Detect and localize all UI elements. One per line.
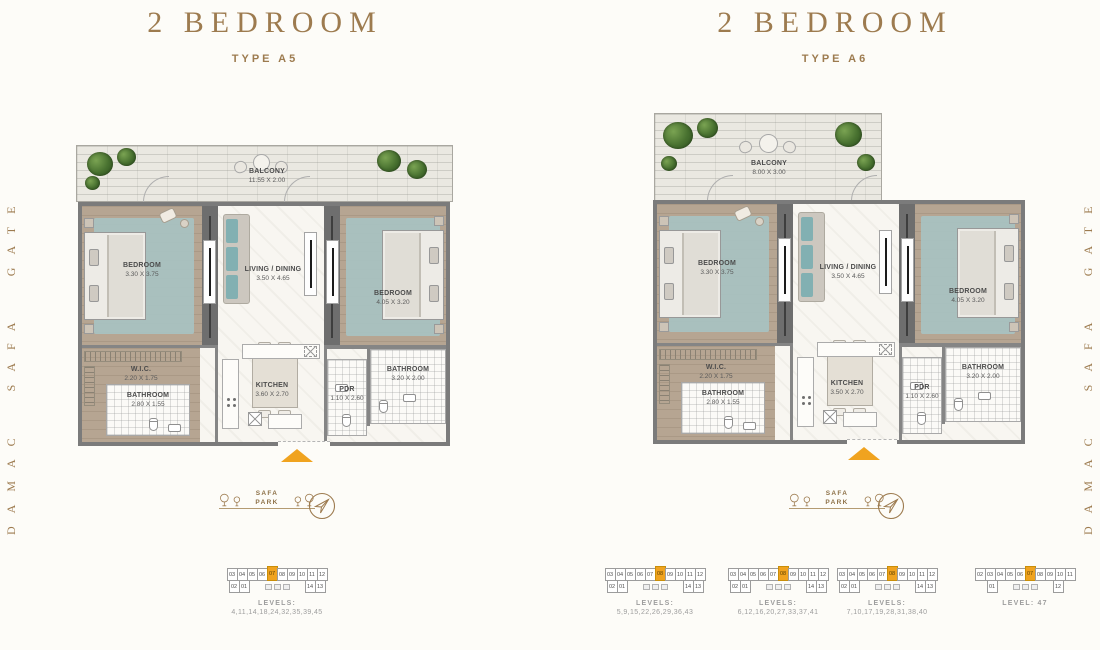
tv-panel	[304, 232, 317, 296]
core-box	[1022, 584, 1029, 590]
pillow	[89, 285, 99, 302]
levels-caption: LEVELS:	[718, 600, 838, 607]
room-dimension: 11.55 X 2.00	[207, 177, 327, 184]
safa-park-indicator: SAFA PARK	[219, 493, 315, 509]
room-dimension: 3.50 X 2.70	[797, 389, 897, 396]
diagram-core	[751, 580, 807, 593]
tree-icon	[219, 493, 230, 507]
toilet	[724, 416, 733, 429]
diagram-core	[250, 580, 306, 593]
room-name: KITCHEN	[797, 380, 897, 388]
level-key-diagram: 0304050607080910111202011413 LEVELS: 6,1…	[718, 568, 838, 616]
plant-icon	[857, 154, 875, 171]
diagram-bottom-row: 02011413	[827, 580, 947, 593]
nightstand	[84, 218, 94, 228]
pillow	[429, 247, 439, 264]
unit-cell: 01	[740, 580, 751, 593]
entry-arrow	[281, 449, 313, 462]
room-label-wic: W.I.C. 2.20 X 1.75	[657, 364, 775, 380]
level-key-diagram: 0304050607080910111202011413 LEVELS: 4,1…	[217, 568, 337, 616]
room-dimension: 4.05 X 3.20	[340, 299, 446, 306]
powder-room: PDR 1.10 X 2.60	[327, 359, 367, 436]
diagram-core	[860, 580, 916, 593]
tree-icon	[803, 496, 811, 507]
room-dimension: 2.20 X 1.75	[657, 373, 775, 380]
room-dimension: 1.10 X 2.60	[903, 393, 941, 400]
nightstand	[659, 322, 669, 332]
room-label-bathroom-2: BATHROOM 3.20 X 2.00	[371, 366, 445, 382]
core-box	[893, 584, 900, 590]
vanity-seat	[180, 219, 189, 228]
basin	[168, 424, 181, 432]
nightstand	[1009, 214, 1019, 224]
plan-subtitle-a6: TYPE A6	[635, 53, 1035, 65]
kitchen-hatch	[879, 344, 892, 355]
room-dimension: 1.10 X 2.60	[328, 395, 366, 402]
room-label-bathroom-1: BATHROOM 2.80 X 1.55	[682, 390, 764, 406]
basin	[743, 422, 756, 430]
core-box	[884, 584, 891, 590]
room-name: BEDROOM	[340, 290, 446, 298]
bathroom-1: BATHROOM 2.80 X 1.55	[681, 382, 765, 434]
core-box	[643, 584, 650, 590]
room-name: BALCONY	[709, 160, 829, 168]
closet-rail	[84, 351, 182, 362]
room-name: BATHROOM	[371, 366, 445, 374]
level-key-diagram: 0304050607080910111202011413 LEVELS: 7,1…	[827, 568, 947, 616]
room-label-bathroom-1: BATHROOM 2.80 X 1.55	[107, 392, 189, 408]
bathroom-2: BATHROOM 3.20 X 2.00	[945, 347, 1021, 422]
tree-icon	[789, 493, 800, 507]
stove-burner	[802, 396, 805, 399]
unit-cell: 12	[1053, 580, 1064, 593]
bed	[382, 230, 444, 320]
unit-cell: 11	[1065, 568, 1076, 581]
room-dimension: 2.20 X 1.75	[82, 375, 200, 382]
plant-icon	[663, 122, 693, 149]
levels-values: 5,9,15,22,26,29,36,43	[595, 609, 715, 616]
room-dimension: 3.20 X 2.00	[946, 373, 1020, 380]
basin	[978, 392, 991, 400]
entry-opening	[847, 439, 897, 445]
park-row: SAFA PARK	[219, 493, 315, 507]
room-dimension: 3.20 X 2.00	[371, 375, 445, 382]
room-name: BATHROOM	[107, 392, 189, 400]
room-label-balcony: BALCONY 11.55 X 2.00	[207, 168, 327, 184]
kitchen-sink	[823, 410, 837, 424]
stove-burner	[808, 402, 811, 405]
core-box	[274, 584, 281, 590]
sofa	[223, 214, 250, 304]
room-name: BATHROOM	[682, 390, 764, 398]
room-name: W.I.C.	[82, 366, 200, 374]
level-key-diagram: 0304050607080910111202011413 LEVELS: 5,9…	[595, 568, 715, 616]
powder-room: PDR 1.10 X 2.60	[902, 357, 942, 434]
balcony-chair	[737, 139, 753, 155]
stove-burner	[802, 402, 805, 405]
room-name: BATHROOM	[946, 364, 1020, 372]
core-box	[661, 584, 668, 590]
room-dimension: 4.05 X 3.20	[915, 297, 1021, 304]
room-name: PDR	[903, 384, 941, 392]
room-label-living-dining: LIVING / DINING 3.50 X 4.65	[793, 264, 903, 280]
tv-panel	[778, 238, 791, 302]
floorplan-body: W.I.C. 2.20 X 1.75 BATHROOM 2.80 X 1.55 …	[653, 200, 1025, 444]
diagram-bottom-row: 02011413	[595, 580, 715, 593]
room-label-balcony: BALCONY 8.00 X 3.00	[709, 160, 829, 176]
room-dimension: 2.80 X 1.55	[107, 401, 189, 408]
diagram-core	[628, 580, 684, 593]
diagram-bottom-row: 02011413	[217, 580, 337, 593]
balcony-chair	[781, 139, 797, 155]
levels-caption: LEVEL: 47	[965, 600, 1085, 607]
room-label-bathroom-2: BATHROOM 3.20 X 2.00	[946, 364, 1020, 380]
unit-cell: 01	[849, 580, 860, 593]
core-box	[283, 584, 290, 590]
plan-subtitle-a5: TYPE A5	[65, 53, 465, 65]
bed	[957, 228, 1019, 318]
core-box	[784, 584, 791, 590]
tv-panel	[879, 230, 892, 294]
toilet	[954, 398, 963, 411]
balcony-area: BALCONY 8.00 X 3.00	[654, 113, 882, 201]
kitchen-hatch	[304, 346, 317, 357]
room-dimension: 3.30 X 3.75	[657, 269, 777, 276]
core-box	[766, 584, 773, 590]
kitchen-counter	[843, 412, 877, 427]
nightstand	[84, 324, 94, 334]
sofa-cushion	[801, 217, 813, 241]
tree-icon	[294, 496, 302, 507]
sofa	[798, 212, 825, 302]
room-label-bedroom-2: BEDROOM 4.05 X 3.20	[340, 290, 446, 306]
door-arc	[143, 176, 169, 202]
nightstand	[434, 324, 444, 334]
room-label-bedroom-1: BEDROOM 3.30 X 3.75	[657, 260, 777, 276]
wall	[790, 343, 793, 440]
brand-vertical-text-right: DAMAC SAFA GATE	[1081, 150, 1096, 535]
plant-icon	[407, 160, 427, 179]
compass-icon	[308, 492, 336, 520]
bathroom-1: BATHROOM 2.80 X 1.55	[106, 384, 190, 436]
tree-icon	[864, 496, 872, 507]
wall	[215, 345, 218, 442]
room-dimension: 2.80 X 1.55	[682, 399, 764, 406]
room-label-bedroom-1: BEDROOM 3.30 X 3.75	[82, 262, 202, 278]
balcony-area: BALCONY 11.55 X 2.00	[76, 145, 453, 202]
balcony-table	[759, 134, 778, 153]
core-box	[1031, 584, 1038, 590]
nightstand	[1009, 322, 1019, 332]
plant-icon	[87, 152, 113, 176]
plant-icon	[377, 150, 401, 172]
page-title-a5: 2 BEDROOM	[65, 6, 465, 40]
plant-icon	[661, 156, 677, 171]
wall	[82, 345, 218, 348]
levels-values: 7,10,17,19,28,31,38,40	[827, 609, 947, 616]
stove-burner	[233, 398, 236, 401]
unit-cell: 01	[987, 580, 998, 593]
plant-icon	[697, 118, 718, 138]
stove-burner	[227, 398, 230, 401]
floorplan-body: W.I.C. 2.20 X 1.75 BATHROOM 2.80 X 1.55 …	[78, 202, 450, 446]
unit-cell: 01	[239, 580, 250, 593]
wall	[324, 349, 327, 442]
door-arc	[851, 175, 877, 201]
door-arc	[707, 175, 733, 201]
core-box	[1013, 584, 1020, 590]
kitchen-sink	[248, 412, 262, 426]
room-name: LIVING / DINING	[218, 266, 328, 274]
core-box	[775, 584, 782, 590]
floorplan-type-a5: BALCONY 11.55 X 2.00	[75, 135, 455, 480]
room-dimension: 3.50 X 4.65	[218, 275, 328, 282]
room-dimension: 3.30 X 3.75	[82, 271, 202, 278]
park-label: SAFA PARK	[813, 489, 860, 507]
room-name: KITCHEN	[222, 382, 322, 390]
floorplan-type-a6: BALCONY 8.00 X 3.00	[650, 105, 1030, 480]
toilet	[342, 414, 351, 427]
nightstand	[659, 216, 669, 226]
unit-cell: 13	[693, 580, 704, 593]
wall	[657, 343, 793, 346]
sofa-cushion	[226, 219, 238, 243]
plant-icon	[117, 148, 136, 166]
plant-icon	[835, 122, 862, 147]
room-dimension: 3.50 X 4.65	[793, 273, 903, 280]
diagram-core	[998, 580, 1054, 593]
room-name: PDR	[328, 386, 366, 394]
closet-rail	[659, 349, 757, 360]
park-ground-line	[219, 508, 315, 509]
safa-park-indicator: SAFA PARK	[789, 493, 885, 509]
entry-opening	[278, 441, 330, 447]
levels-caption: LEVELS:	[595, 600, 715, 607]
room-name: LIVING / DINING	[793, 264, 903, 272]
room-label-wic: W.I.C. 2.20 X 1.75	[82, 366, 200, 382]
level-key-diagram: 020304050607080910110112 LEVEL: 47	[965, 568, 1085, 609]
stove-burner	[227, 404, 230, 407]
room-name: W.I.C.	[657, 364, 775, 372]
plant-icon	[85, 176, 100, 190]
entry-arrow	[848, 447, 880, 460]
levels-caption: LEVELS:	[217, 600, 337, 607]
room-name: BALCONY	[207, 168, 327, 176]
diagram-bottom-row: 0112	[965, 580, 1085, 593]
wall	[324, 345, 446, 349]
unit-cell: 13	[925, 580, 936, 593]
toilet	[917, 412, 926, 425]
pillow	[1004, 245, 1014, 262]
core-box	[265, 584, 272, 590]
room-name: BEDROOM	[915, 288, 1021, 296]
tv-panel	[203, 240, 216, 304]
pillow	[664, 283, 674, 300]
room-label-pdr: PDR 1.10 X 2.60	[328, 386, 366, 402]
levels-caption: LEVELS:	[827, 600, 947, 607]
wall	[367, 349, 370, 426]
dining-table	[252, 352, 298, 408]
tree-icon	[233, 496, 241, 507]
room-name: BEDROOM	[82, 262, 202, 270]
room-dimension: 8.00 X 3.00	[709, 169, 829, 176]
room-label-living-dining: LIVING / DINING 3.50 X 4.65	[218, 266, 328, 282]
basin	[403, 394, 416, 402]
room-label-kitchen: KITCHEN 3.50 X 2.70	[797, 380, 897, 396]
brand-vertical-text-left: DAMAC SAFA GATE	[4, 150, 19, 535]
room-label-kitchen: KITCHEN 3.60 X 2.70	[222, 382, 322, 398]
vanity-seat	[755, 217, 764, 226]
bathroom-2: BATHROOM 3.20 X 2.00	[370, 349, 446, 424]
stove-burner	[233, 404, 236, 407]
room-name: BEDROOM	[657, 260, 777, 268]
compass-icon	[877, 492, 905, 520]
room-label-pdr: PDR 1.10 X 2.60	[903, 384, 941, 400]
core-box	[875, 584, 882, 590]
levels-values: 6,12,16,20,27,33,37,41	[718, 609, 838, 616]
wall	[899, 343, 1021, 347]
bedroom-2	[340, 206, 446, 348]
room-label-bedroom-2: BEDROOM 4.05 X 3.20	[915, 288, 1021, 304]
toilet	[379, 400, 388, 413]
kitchen-counter	[268, 414, 302, 429]
wall	[942, 347, 945, 424]
diagram-bottom-row: 02011413	[718, 580, 838, 593]
page-title-a6: 2 BEDROOM	[635, 6, 1035, 40]
unit-cell: 13	[315, 580, 326, 593]
unit-cell: 13	[816, 580, 827, 593]
stove-burner	[808, 396, 811, 399]
unit-cell: 01	[617, 580, 628, 593]
wall	[899, 347, 902, 440]
park-ground-line	[789, 508, 885, 509]
plan-header-a5: 2 BEDROOM TYPE A5	[65, 6, 465, 65]
toilet	[149, 418, 158, 431]
park-label: SAFA PARK	[243, 489, 290, 507]
room-dimension: 3.60 X 2.70	[222, 391, 322, 398]
dining-table	[827, 350, 873, 406]
core-box	[652, 584, 659, 590]
plan-header-a6: 2 BEDROOM TYPE A6	[635, 6, 1035, 65]
bedroom-2	[915, 204, 1021, 346]
nightstand	[434, 216, 444, 226]
park-row: SAFA PARK	[789, 493, 885, 507]
levels-values: 4,11,14,18,24,32,35,39,45	[217, 609, 337, 616]
